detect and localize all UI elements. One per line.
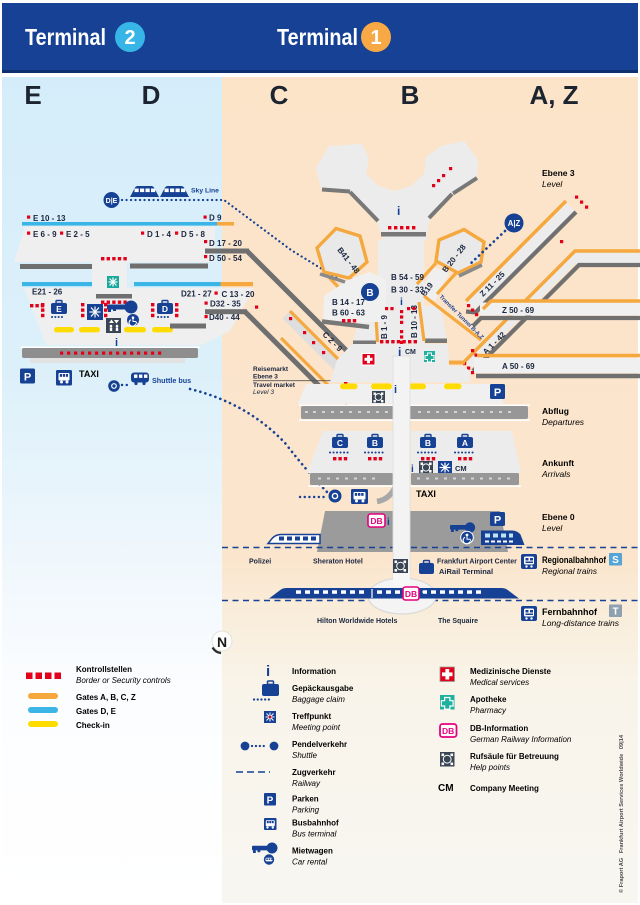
svg-text:i: i xyxy=(387,517,390,528)
svg-text:B 54 - 59: B 54 - 59 xyxy=(391,273,424,282)
svg-text:D: D xyxy=(162,304,168,314)
svg-text:TAXI: TAXI xyxy=(416,489,436,499)
svg-text:P: P xyxy=(267,796,274,807)
svg-text:Company Meeting: Company Meeting xyxy=(470,784,539,793)
svg-text:C: C xyxy=(270,80,289,110)
svg-text:Shuttle bus: Shuttle bus xyxy=(152,376,191,385)
svg-text:Z 50 - 69: Z 50 - 69 xyxy=(502,306,535,315)
svg-text:B: B xyxy=(366,288,373,299)
svg-text:P: P xyxy=(494,515,501,527)
svg-text:D40 - 44: D40 - 44 xyxy=(209,313,240,322)
svg-text:CM: CM xyxy=(405,349,416,356)
svg-text:1: 1 xyxy=(370,27,381,49)
svg-text:Arrivals: Arrivals xyxy=(541,469,571,479)
svg-text:B: B xyxy=(372,438,378,448)
svg-text:E 10 - 13: E 10 - 13 xyxy=(33,214,66,223)
svg-text:D 5 - 8: D 5 - 8 xyxy=(181,230,206,239)
svg-text:C: C xyxy=(337,438,343,448)
svg-text:Check-in: Check-in xyxy=(76,721,110,730)
svg-text:D: D xyxy=(142,80,161,110)
svg-text:DB: DB xyxy=(405,589,417,599)
svg-text:i: i xyxy=(398,345,401,359)
svg-text:i: i xyxy=(266,663,270,680)
svg-text:DB-Information: DB-Information xyxy=(470,724,528,733)
svg-text:E: E xyxy=(56,304,62,314)
svg-text:Sky Line: Sky Line xyxy=(191,188,219,195)
svg-text:Departures: Departures xyxy=(542,417,585,427)
svg-text:Border or Security controls: Border or Security controls xyxy=(76,676,171,685)
svg-text:B 30 - 33: B 30 - 33 xyxy=(391,286,424,295)
svg-text:Regionalbahnhof: Regionalbahnhof xyxy=(542,555,607,565)
svg-text:B: B xyxy=(401,80,420,110)
svg-text:Meeting point: Meeting point xyxy=(292,723,341,732)
svg-text:Pharmacy: Pharmacy xyxy=(470,706,507,715)
svg-text:C 13 - 20: C 13 - 20 xyxy=(222,290,255,299)
svg-text:Kontrollstellen: Kontrollstellen xyxy=(76,665,132,674)
svg-text:N: N xyxy=(217,634,227,650)
svg-text:Gates A, B, C, Z: Gates A, B, C, Z xyxy=(76,693,136,702)
svg-text:Long-distance trains: Long-distance trains xyxy=(542,618,620,628)
svg-text:Hilton Worldwide Hotels: Hilton Worldwide Hotels xyxy=(317,618,397,625)
svg-text:Travel market: Travel market xyxy=(253,382,296,389)
svg-text:A: A xyxy=(462,438,468,448)
svg-text:Ebene 3: Ebene 3 xyxy=(253,374,278,381)
svg-text:S: S xyxy=(612,555,619,566)
svg-text:D21 - 27: D21 - 27 xyxy=(181,290,212,299)
svg-text:Apotheke: Apotheke xyxy=(470,695,507,704)
svg-text:D|E: D|E xyxy=(106,198,118,205)
svg-text:A 50 - 69: A 50 - 69 xyxy=(502,362,535,371)
svg-text:E 6 - 9: E 6 - 9 xyxy=(33,230,57,239)
svg-text:Terminal: Terminal xyxy=(277,24,358,50)
svg-text:AiRail Terminal: AiRail Terminal xyxy=(439,567,493,576)
svg-text:B 14 - 17: B 14 - 17 xyxy=(332,298,365,307)
svg-text:Medical services: Medical services xyxy=(470,678,529,687)
svg-text:Shuttle: Shuttle xyxy=(292,751,317,760)
svg-text:Pendelverkehr: Pendelverkehr xyxy=(292,740,347,749)
svg-text:The Squaire: The Squaire xyxy=(438,618,478,625)
svg-text:E: E xyxy=(24,80,41,110)
svg-text:CM: CM xyxy=(438,783,454,794)
svg-text:Mietwagen: Mietwagen xyxy=(292,847,333,856)
svg-text:A|Z: A|Z xyxy=(508,219,521,228)
svg-text:Fernbahnhof: Fernbahnhof xyxy=(542,607,598,617)
svg-text:A, Z: A, Z xyxy=(529,80,578,110)
svg-text:Parken: Parken xyxy=(292,795,319,804)
svg-text:Gepäckausgabe: Gepäckausgabe xyxy=(292,684,354,693)
svg-text:Polizei: Polizei xyxy=(249,559,271,566)
svg-text:D 50 - 54: D 50 - 54 xyxy=(209,254,242,263)
svg-text:Rufsäule für Betreuung: Rufsäule für Betreuung xyxy=(470,752,559,761)
svg-text:Abflug: Abflug xyxy=(542,406,569,416)
svg-text:German Railway Information: German Railway Information xyxy=(470,735,572,744)
svg-text:Gates D, E: Gates D, E xyxy=(76,707,117,716)
svg-text:CM: CM xyxy=(455,464,467,473)
svg-text:Information: Information xyxy=(292,667,336,676)
svg-text:Help points: Help points xyxy=(470,763,510,772)
svg-text:Level 3: Level 3 xyxy=(253,389,274,396)
svg-text:E21 - 26: E21 - 26 xyxy=(32,288,63,297)
svg-text:B: B xyxy=(425,438,431,448)
svg-text:Parking: Parking xyxy=(292,806,320,815)
svg-text:Medizinische Dienste: Medizinische Dienste xyxy=(470,667,551,676)
svg-text:TAXI: TAXI xyxy=(79,369,99,379)
svg-text:DB: DB xyxy=(442,726,454,736)
svg-text:DB: DB xyxy=(370,516,382,526)
svg-text:i: i xyxy=(421,590,424,601)
svg-text:D 9: D 9 xyxy=(209,214,222,223)
svg-text:P: P xyxy=(24,372,31,384)
svg-text:Zugverkehr: Zugverkehr xyxy=(292,768,336,777)
svg-text:i: i xyxy=(397,204,400,218)
svg-text:Railway: Railway xyxy=(292,779,321,788)
svg-text:Busbahnhof: Busbahnhof xyxy=(292,819,339,828)
svg-text:Ebene 3: Ebene 3 xyxy=(542,168,575,178)
svg-text:i: i xyxy=(394,384,397,396)
svg-text:Level: Level xyxy=(542,179,563,189)
svg-text:Treffpunkt: Treffpunkt xyxy=(292,712,331,721)
svg-text:P: P xyxy=(494,387,501,399)
svg-text:Ebene 0: Ebene 0 xyxy=(542,512,575,522)
svg-text:B 1 - 9: B 1 - 9 xyxy=(380,314,389,339)
svg-text:D 17 - 20: D 17 - 20 xyxy=(209,239,242,248)
svg-text:T: T xyxy=(612,607,618,618)
svg-text:Baggage claim: Baggage claim xyxy=(292,695,345,704)
svg-text:D 1 - 4: D 1 - 4 xyxy=(147,230,172,239)
svg-text:© Fraport AG Frankfurt Airpo: © Fraport AG Frankfurt Airport Services … xyxy=(618,734,625,893)
svg-text:Sheraton Hotel: Sheraton Hotel xyxy=(313,559,363,566)
svg-text:i: i xyxy=(400,296,403,308)
svg-text:Car rental: Car rental xyxy=(292,858,327,867)
svg-text:Reisemarkt: Reisemarkt xyxy=(253,366,289,373)
svg-text:D32 - 35: D32 - 35 xyxy=(210,300,241,309)
svg-text:Bus terminal: Bus terminal xyxy=(292,830,337,839)
svg-text:Regional trains: Regional trains xyxy=(542,566,598,576)
svg-text:2: 2 xyxy=(124,27,135,49)
svg-text:Frankfurt Airport Center: Frankfurt Airport Center xyxy=(437,559,517,566)
svg-text:Level: Level xyxy=(542,523,563,533)
svg-text:Ankunft: Ankunft xyxy=(542,458,574,468)
svg-text:B 60 - 63: B 60 - 63 xyxy=(332,309,365,318)
svg-text:Terminal: Terminal xyxy=(25,24,106,50)
svg-text:E 2 - 5: E 2 - 5 xyxy=(66,230,90,239)
